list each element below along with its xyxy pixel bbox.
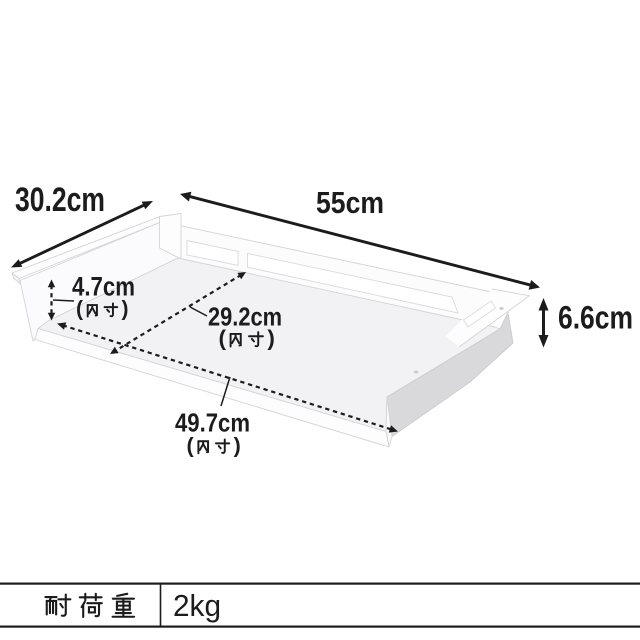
svg-text:(: (	[219, 326, 227, 351]
svg-text:): )	[122, 298, 129, 321]
svg-text:6.6cm: 6.6cm	[558, 300, 633, 336]
svg-text:(: (	[187, 433, 195, 457]
svg-text:55cm: 55cm	[316, 185, 384, 220]
svg-text:(: (	[76, 298, 83, 321]
svg-text:): )	[267, 326, 275, 351]
svg-text:30.2cm: 30.2cm	[15, 181, 105, 219]
svg-text:2kg: 2kg	[173, 588, 221, 623]
svg-text:): )	[234, 433, 241, 457]
